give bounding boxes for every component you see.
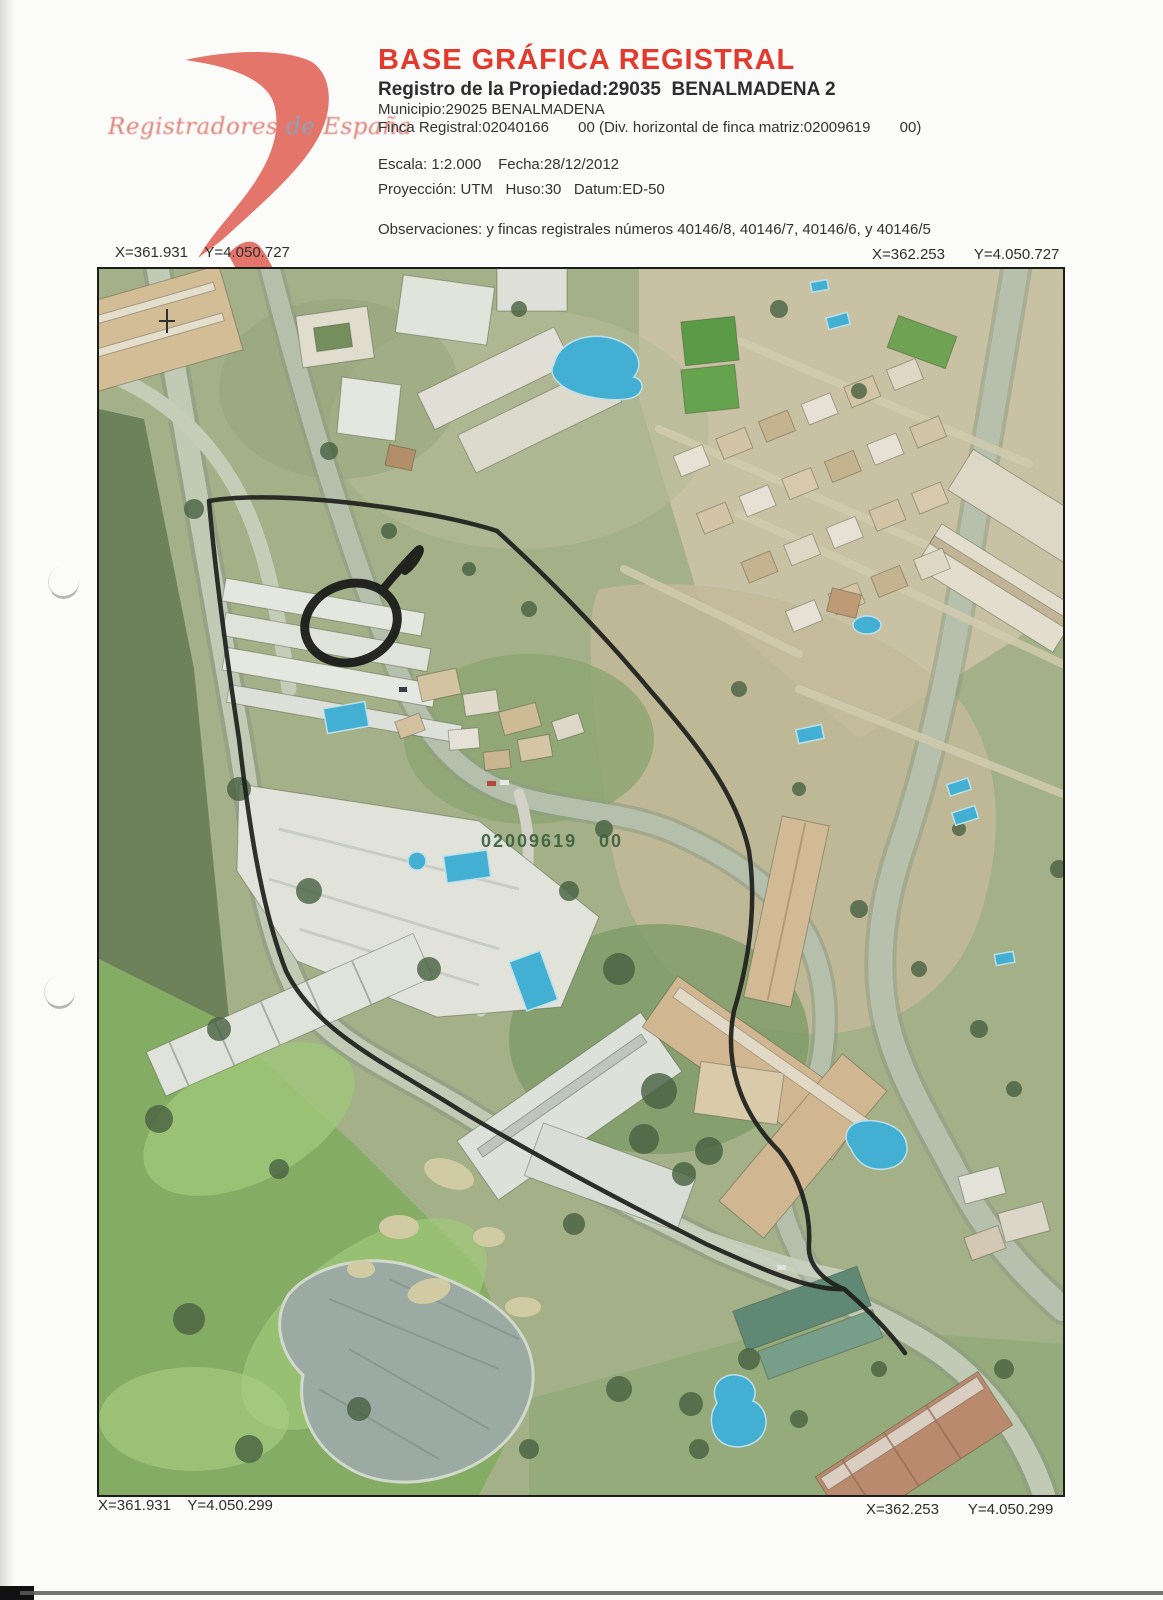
- coord-top-right: X=362.253 Y=4.050.727: [872, 246, 1059, 263]
- registro-line: Registro de la Propiedad:29035 BENALMADE…: [378, 79, 836, 101]
- scan-artifact-line: [20, 1591, 1163, 1595]
- aerial-map-image: 02009619 00: [97, 267, 1065, 1497]
- coord-top-left: X=361.931 Y=4.050.727: [115, 244, 290, 261]
- page-edge-shadow: [0, 0, 14, 1600]
- scan-fade-overlay: [99, 269, 1063, 1495]
- hole-punch-mark: [42, 974, 77, 1011]
- hole-punch-mark: [46, 564, 81, 601]
- escala-fecha-line: Escala: 1:2.000 Fecha:28/12/2012: [378, 156, 619, 173]
- observaciones-line: Observaciones: y fincas registrales núme…: [378, 221, 931, 238]
- coord-bottom-right: X=362.253 Y=4.050.299: [866, 1501, 1053, 1518]
- proyeccion-line: Proyección: UTM Huso:30 Datum:ED-50: [378, 181, 665, 198]
- municipio-line: Municipio:29025 BENALMADENA: [378, 101, 605, 118]
- scanned-registry-sheet: Registradores de España BASE GRÁFICA REG…: [0, 0, 1163, 1600]
- page-title: BASE GRÁFICA REGISTRAL: [378, 44, 795, 77]
- finca-registral-line: Finca Registral:02040166 00 (Div. horizo…: [378, 119, 921, 136]
- coord-bottom-left: X=361.931 Y=4.050.299: [98, 1497, 273, 1514]
